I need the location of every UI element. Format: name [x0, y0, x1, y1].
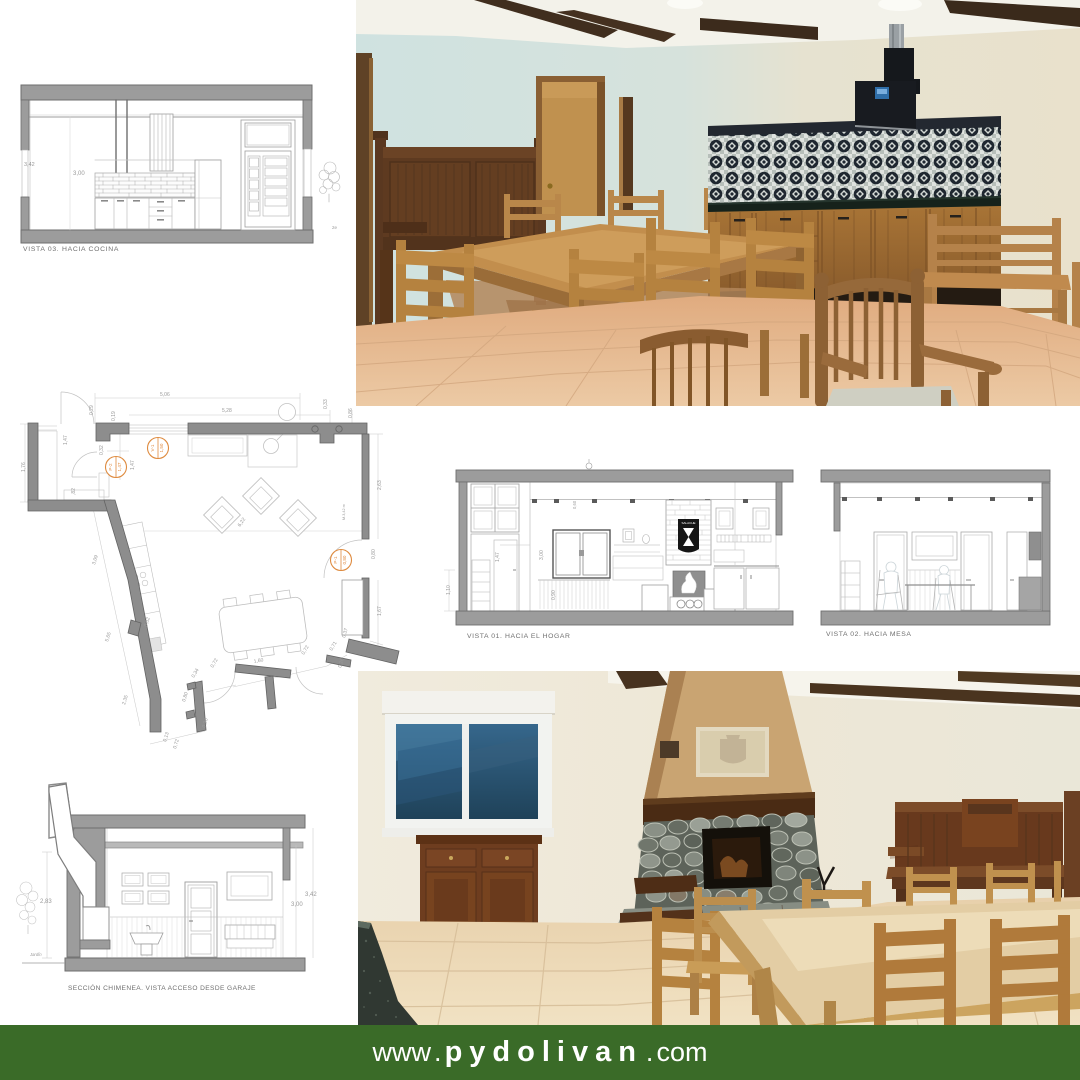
svg-text:0,32: 0,32 — [99, 445, 105, 455]
svg-text:0,86: 0,86 — [348, 408, 354, 418]
svg-text:3,42: 3,42 — [305, 892, 317, 898]
svg-text:0,80: 0,80 — [371, 549, 377, 559]
svg-text:Jardín: Jardín — [29, 952, 42, 957]
svg-text:5,06: 5,06 — [160, 392, 170, 398]
svg-text:1,47: 1,47 — [63, 435, 69, 445]
svg-text:0,80: 0,80 — [181, 691, 190, 702]
svg-text:SECCIÓN CHIMENEA. VISTA ACCESO: SECCIÓN CHIMENEA. VISTA ACCESO DESDE GAR… — [68, 983, 256, 992]
svg-text:0,13: 0,13 — [162, 731, 171, 742]
svg-text:P-2: P-2 — [108, 463, 113, 471]
svg-text:2,83: 2,83 — [40, 899, 52, 905]
svg-text:2,63: 2,63 — [377, 480, 383, 490]
svg-text:0,60: 0,60 — [572, 500, 577, 509]
svg-text:VISTA 01. HACIA EL HOGAR: VISTA 01. HACIA EL HOGAR — [467, 633, 571, 640]
svg-text:0,80: 0,80 — [342, 555, 347, 564]
svg-text:1,50: 1,50 — [159, 443, 164, 452]
svg-text:0,90: 0,90 — [551, 590, 557, 600]
svg-text:5,65: 5,65 — [104, 631, 113, 642]
svg-text:1,60: 1,60 — [253, 657, 264, 665]
svg-text:2,35: 2,35 — [121, 694, 130, 705]
svg-text:3,42: 3,42 — [24, 162, 35, 168]
svg-text:SALACHE: SALACHE — [681, 521, 695, 525]
svg-text:0,72: 0,72 — [172, 738, 181, 749]
svg-text:,82: ,82 — [71, 488, 77, 495]
svg-text:6,22: 6,22 — [237, 517, 248, 529]
svg-text:1,76: 1,76 — [21, 462, 27, 472]
svg-text:3,09: 3,09 — [91, 554, 100, 565]
svg-text:P-1: P-1 — [333, 556, 338, 564]
svg-text:VISTA 02. HACIA MESA: VISTA 02. HACIA MESA — [826, 631, 912, 638]
svg-text:V-1: V-1 — [150, 444, 155, 451]
svg-text:0,71: 0,71 — [329, 640, 339, 652]
svg-text:0,72: 0,72 — [210, 657, 220, 669]
svg-text:VISTA 03. HACIA COCINA: VISTA 03. HACIA COCINA — [23, 246, 119, 253]
svg-text:0,29: 0,29 — [89, 405, 95, 415]
svg-text:3,00: 3,00 — [539, 550, 545, 560]
svg-text:3,00: 3,00 — [73, 171, 85, 177]
svg-text:1,47: 1,47 — [117, 462, 122, 471]
svg-text:5,28: 5,28 — [222, 408, 232, 414]
svg-text:0,34: 0,34 — [191, 667, 201, 679]
svg-text:3,00: 3,00 — [291, 902, 303, 908]
svg-text:2e: 2e — [332, 225, 338, 230]
svg-text:1,47: 1,47 — [130, 460, 136, 470]
svg-text:0,33: 0,33 — [323, 399, 329, 409]
svg-text:0,72: 0,72 — [301, 644, 311, 656]
svg-text:1,47: 1,47 — [495, 552, 501, 562]
svg-text:0,19: 0,19 — [111, 411, 117, 421]
svg-text:1,67: 1,67 — [377, 606, 383, 616]
svg-text:M.3,42 m: M.3,42 m — [342, 504, 346, 520]
